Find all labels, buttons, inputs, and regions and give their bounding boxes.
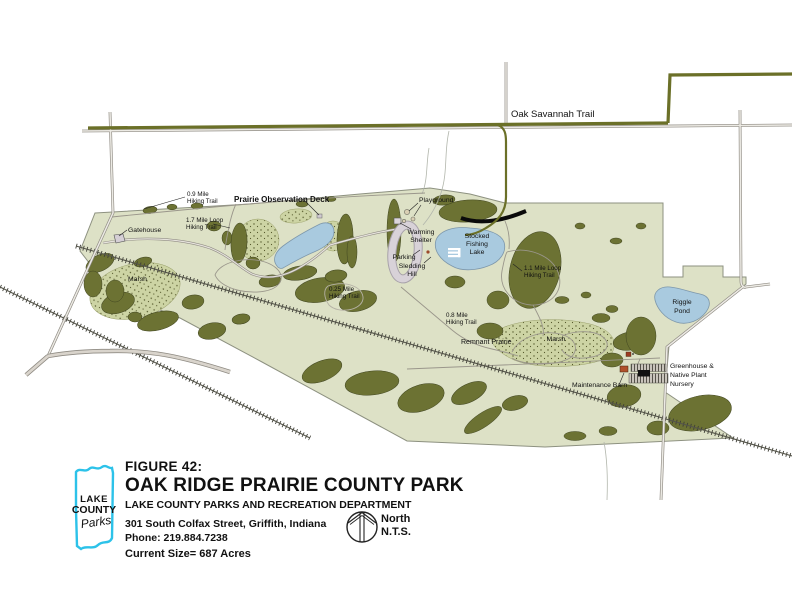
label-greenhouse-line2: Native Plant [670,372,707,379]
label-trail-09-line2: Hiking Trail [187,198,218,205]
greenhouse-icons [629,364,668,383]
label-trail-08-line2: Hiking Trail [446,319,477,326]
shelter-marker-icon [426,250,429,253]
label-sledding-line1: Sledding [399,263,426,270]
label-maintenance-barn: Maintenance Barn [572,382,627,389]
label-trail-09-line1: 0.9 Mile [187,191,209,198]
label-stocked-line3: Lake [470,249,485,256]
label-marsh-east: Marsh [547,336,566,343]
lake-county-logo: LAKE COUNTY Parks [72,466,116,549]
label-gatehouse: Gatehouse [128,227,161,234]
map-page: Oak Savannah Trail 0.9 Mile Hiking Trail… [0,0,792,612]
label-trail-08-line1: 0.8 Mile [446,312,468,319]
label-greenhouse-line1: Greenhouse & [670,363,714,370]
size-line: Current Size= 687 Acres [125,548,464,560]
nursery-marker-icon [626,352,631,357]
label-warming-line1: Warming [408,229,435,236]
label-parking: Parking [392,254,415,261]
north-label: North [381,513,410,525]
label-warming-line2: Shelter [410,237,432,244]
label-trail-025-line1: 0.25 Mile [329,286,355,293]
label-prairie-observation-deck: Prairie Observation Deck [234,195,330,204]
label-marsh-west: Marsh [128,276,147,283]
observation-deck-icon [317,214,322,218]
phone-line: Phone: 219.884.7238 [125,532,464,544]
label-trail-025-line2: Hiking Trail [329,293,360,300]
label-riggle-line1: Riggle [672,299,691,306]
label-trail-17-line2: Hiking Trail [186,224,217,231]
label-greenhouse-line3: Nursery [670,381,694,388]
label-sledding-line2: Hill [407,271,417,278]
label-oak-savannah-trail: Oak Savannah Trail [511,109,594,120]
nts-label: N.T.S. [381,526,411,538]
label-trail-11-line1: 1.1 Mile Loop [524,265,562,272]
address-line: 301 South Colfax Street, Griffith, India… [125,518,464,530]
label-trail-11-line2: Hiking Trail [524,272,555,279]
label-stocked-line2: Fishing [466,241,488,248]
label-playground: Playground [419,197,454,204]
label-trail-17-line1: 1.7 Mile Loop [186,217,224,224]
figure-number: FIGURE 42: [125,459,464,474]
page-title: OAK RIDGE PRAIRIE COUNTY PARK [125,475,464,497]
department-line: LAKE COUNTY PARKS AND RECREATION DEPARTM… [125,499,464,511]
label-remnant-prairie: Remnant Prairie [461,339,512,346]
figure-info: FIGURE 42: OAK RIDGE PRAIRIE COUNTY PARK… [125,459,464,560]
label-stocked-line1: Stocked [465,233,490,240]
maintenance-barn-icon [620,366,628,372]
label-riggle-line2: Pond [674,308,690,315]
fishing-pier-icon [448,248,461,257]
